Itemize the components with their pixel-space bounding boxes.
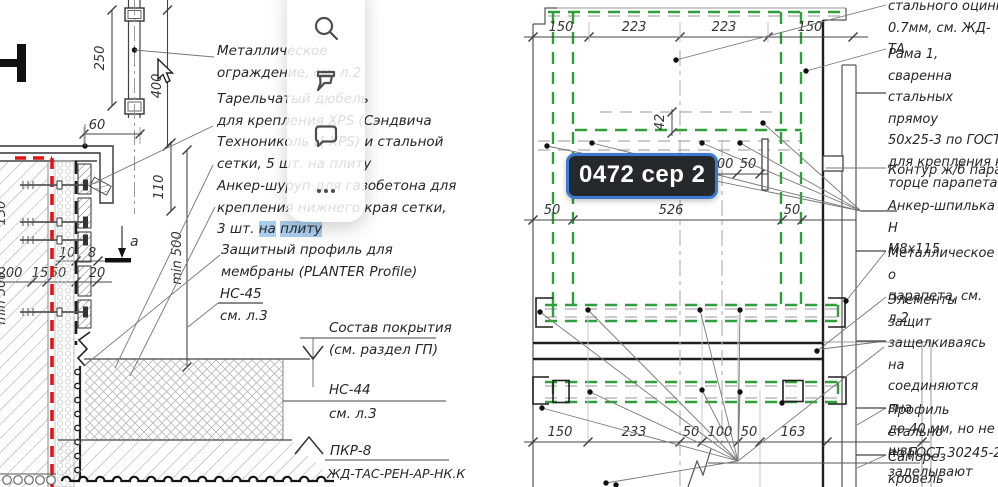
leader-lines-right xyxy=(540,5,886,483)
note-coating: Состав покрытия (см. раздел ГП) xyxy=(329,318,452,361)
dim-label: 50 xyxy=(683,425,700,440)
rnote-roof-screw: Саморез кровель оцинкованный xyxy=(888,447,998,487)
title-letter-fragment xyxy=(0,44,26,82)
comment-icon[interactable] xyxy=(309,120,343,154)
anchor-plate xyxy=(762,139,768,190)
section-marker-a: a xyxy=(105,226,139,263)
dim-label: 100 xyxy=(708,425,733,440)
selected-text-word[interactable]: на xyxy=(259,221,276,237)
dim-label: 50 xyxy=(784,203,801,218)
note-ns45-sub: см. л.3 xyxy=(220,306,268,328)
dim-label: 50 xyxy=(741,425,758,440)
rnote-parapet-contour: Контур ж/б пара xyxy=(888,160,998,182)
dim-label: 150 xyxy=(548,425,573,440)
drawing-canvas: 250 400 60 110 min 500 150 min 500 200 1… xyxy=(0,0,998,487)
note-pkr8-title: ПКР-8 xyxy=(330,441,371,463)
dim-label: 110 xyxy=(152,175,167,200)
dim-label: 250 xyxy=(93,46,108,71)
search-icon[interactable] xyxy=(309,12,343,46)
dim-label: 50 xyxy=(544,203,561,218)
dim-label: 150 xyxy=(549,20,574,35)
note-planter: Защитный профиль для мембраны (PLANTER P… xyxy=(221,240,417,283)
dim-label: 60 xyxy=(89,118,106,133)
note-ns45-title: НС-45 xyxy=(220,284,262,306)
note-line: 3 шт. xyxy=(217,221,254,237)
leader-lines-left xyxy=(84,126,220,376)
dim-label: 42 xyxy=(653,114,668,131)
right-detail-plan: 150 223 223 150 42 50 100 50 50 526 50 xyxy=(524,5,931,487)
band-end-profiles xyxy=(533,298,846,404)
note-pkr8-sub: ЖД-ТАС-РЕН-АР-НК.К xyxy=(327,463,465,485)
dim-label: 526 xyxy=(659,203,684,218)
selection-badge[interactable]: 0472 сер 2 xyxy=(566,153,718,199)
dim-label: 223 xyxy=(712,20,737,35)
floating-annotation-toolbar xyxy=(287,0,365,222)
dim-label: 223 xyxy=(622,20,647,35)
selected-text-word[interactable]: плиту xyxy=(280,221,322,237)
note-ns44-sub: см. л.3 xyxy=(329,404,377,426)
note-ns44-title: НС-44 xyxy=(329,380,371,402)
mouse-cursor xyxy=(157,58,179,88)
dim-label: 50 xyxy=(740,157,757,172)
dim-label: 163 xyxy=(781,425,806,440)
break-symbol xyxy=(688,449,711,487)
svg-text:a: a xyxy=(130,234,139,250)
railing-mount xyxy=(823,156,843,171)
detail-drawings-linework: 250 400 60 110 min 500 150 min 500 200 1… xyxy=(0,0,998,487)
highlighter-icon[interactable] xyxy=(309,66,343,100)
more-options-icon[interactable] xyxy=(309,174,343,208)
